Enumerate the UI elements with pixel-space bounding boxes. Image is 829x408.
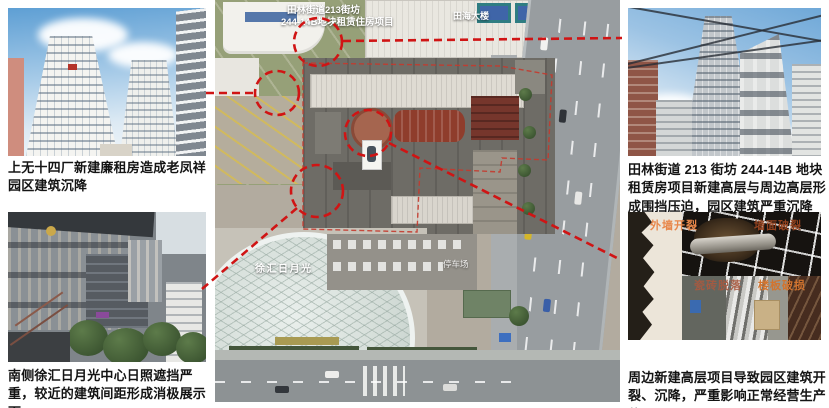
photo-new-highrise-looking-up <box>628 8 821 156</box>
caption-left-top: 上无十四厂新建廉租房造成老凤祥园区建筑沉降 <box>8 159 212 196</box>
tree <box>103 328 149 362</box>
tree <box>518 164 531 177</box>
warehouse-roof <box>391 196 475 224</box>
parked-cars <box>333 240 461 249</box>
east-buildings <box>473 150 517 234</box>
tree <box>523 126 536 139</box>
tree <box>68 320 108 356</box>
white-tower-right <box>792 64 821 156</box>
photo-new-rental-towers <box>8 8 206 156</box>
damage-label-exterior-wall-crack: 外墙开裂 <box>650 217 698 233</box>
damage-label-floor-slab-damage: 楼板破损 <box>758 277 806 293</box>
billboard-figure <box>367 146 376 162</box>
shed <box>315 112 341 154</box>
gold-logo <box>46 226 56 236</box>
caption-right-top: 田林街道 213 街坊 244-14B 地块租赁房项目新建高层与周边高层形成围挡… <box>628 161 829 216</box>
car <box>443 384 457 391</box>
photo-riyueguang-center <box>8 212 206 362</box>
aerial-map: 田林街道213街坊 244-14B地块租赁住房项目 田海大楼 徐汇日月光 停车场 <box>215 0 620 402</box>
dome-label: 徐汇日月光 <box>255 260 313 275</box>
photo-damage-collage: 外墙开裂 墙面破裂 瓷砖脱落 楼板破损 <box>628 212 821 340</box>
car <box>275 386 289 393</box>
red-brick-building <box>471 96 519 140</box>
presentation-figure: 上无十四厂新建廉租房造成老凤祥园区建筑沉降 南侧徐汇日月光中心日照遮挡严重，较近… <box>0 0 829 408</box>
damage-label-wall-surface-break: 墙面破裂 <box>754 217 802 233</box>
parked-cars <box>333 262 443 271</box>
damage-label-tile-falling: 瓷砖脱落 <box>694 277 742 293</box>
car <box>325 371 339 378</box>
tree <box>519 88 532 101</box>
car <box>543 299 551 313</box>
caption-right-bottom: 周边新建高层项目导致园区建筑开裂、沉降，严重影响正常经营生产使用。 <box>628 369 829 408</box>
lane-marking <box>215 381 515 383</box>
tianhai-building-label: 田海大楼 <box>453 9 489 22</box>
tree <box>509 306 529 326</box>
rooftop-sign <box>68 64 77 70</box>
low-building <box>100 144 132 156</box>
tree <box>176 332 206 362</box>
salmon-building <box>8 58 24 156</box>
site-label-line1: 田林街道213街坊 <box>281 5 441 17</box>
caption-left-bottom: 南侧徐汇日月光中心日照遮挡严重，较近的建筑间距形成消极展示面。 <box>8 367 216 408</box>
yellow-bushes <box>275 337 339 345</box>
lane-marking <box>564 0 613 402</box>
green-canopy <box>463 290 511 318</box>
site-label: 田林街道213街坊 244-14B地块租赁住房项目 <box>281 5 441 30</box>
sky-patch <box>156 212 206 254</box>
highrise-right-edge <box>176 8 206 156</box>
cardboard-box <box>754 300 780 330</box>
mid-towers <box>656 100 692 156</box>
parking-label: 停车场 <box>443 258 469 270</box>
red-building-left <box>628 60 658 156</box>
car <box>574 191 582 205</box>
blue-tarp <box>499 333 511 342</box>
tree <box>522 202 535 215</box>
striped-tower <box>128 240 162 302</box>
car <box>540 37 548 51</box>
blue-bin <box>690 300 701 313</box>
car <box>559 109 567 123</box>
site-label-line2: 244-14B地块租赁住房项目 <box>281 17 393 28</box>
red-arched-roof <box>393 110 465 142</box>
road-foreground <box>8 332 70 362</box>
storefront-sign <box>96 312 109 318</box>
